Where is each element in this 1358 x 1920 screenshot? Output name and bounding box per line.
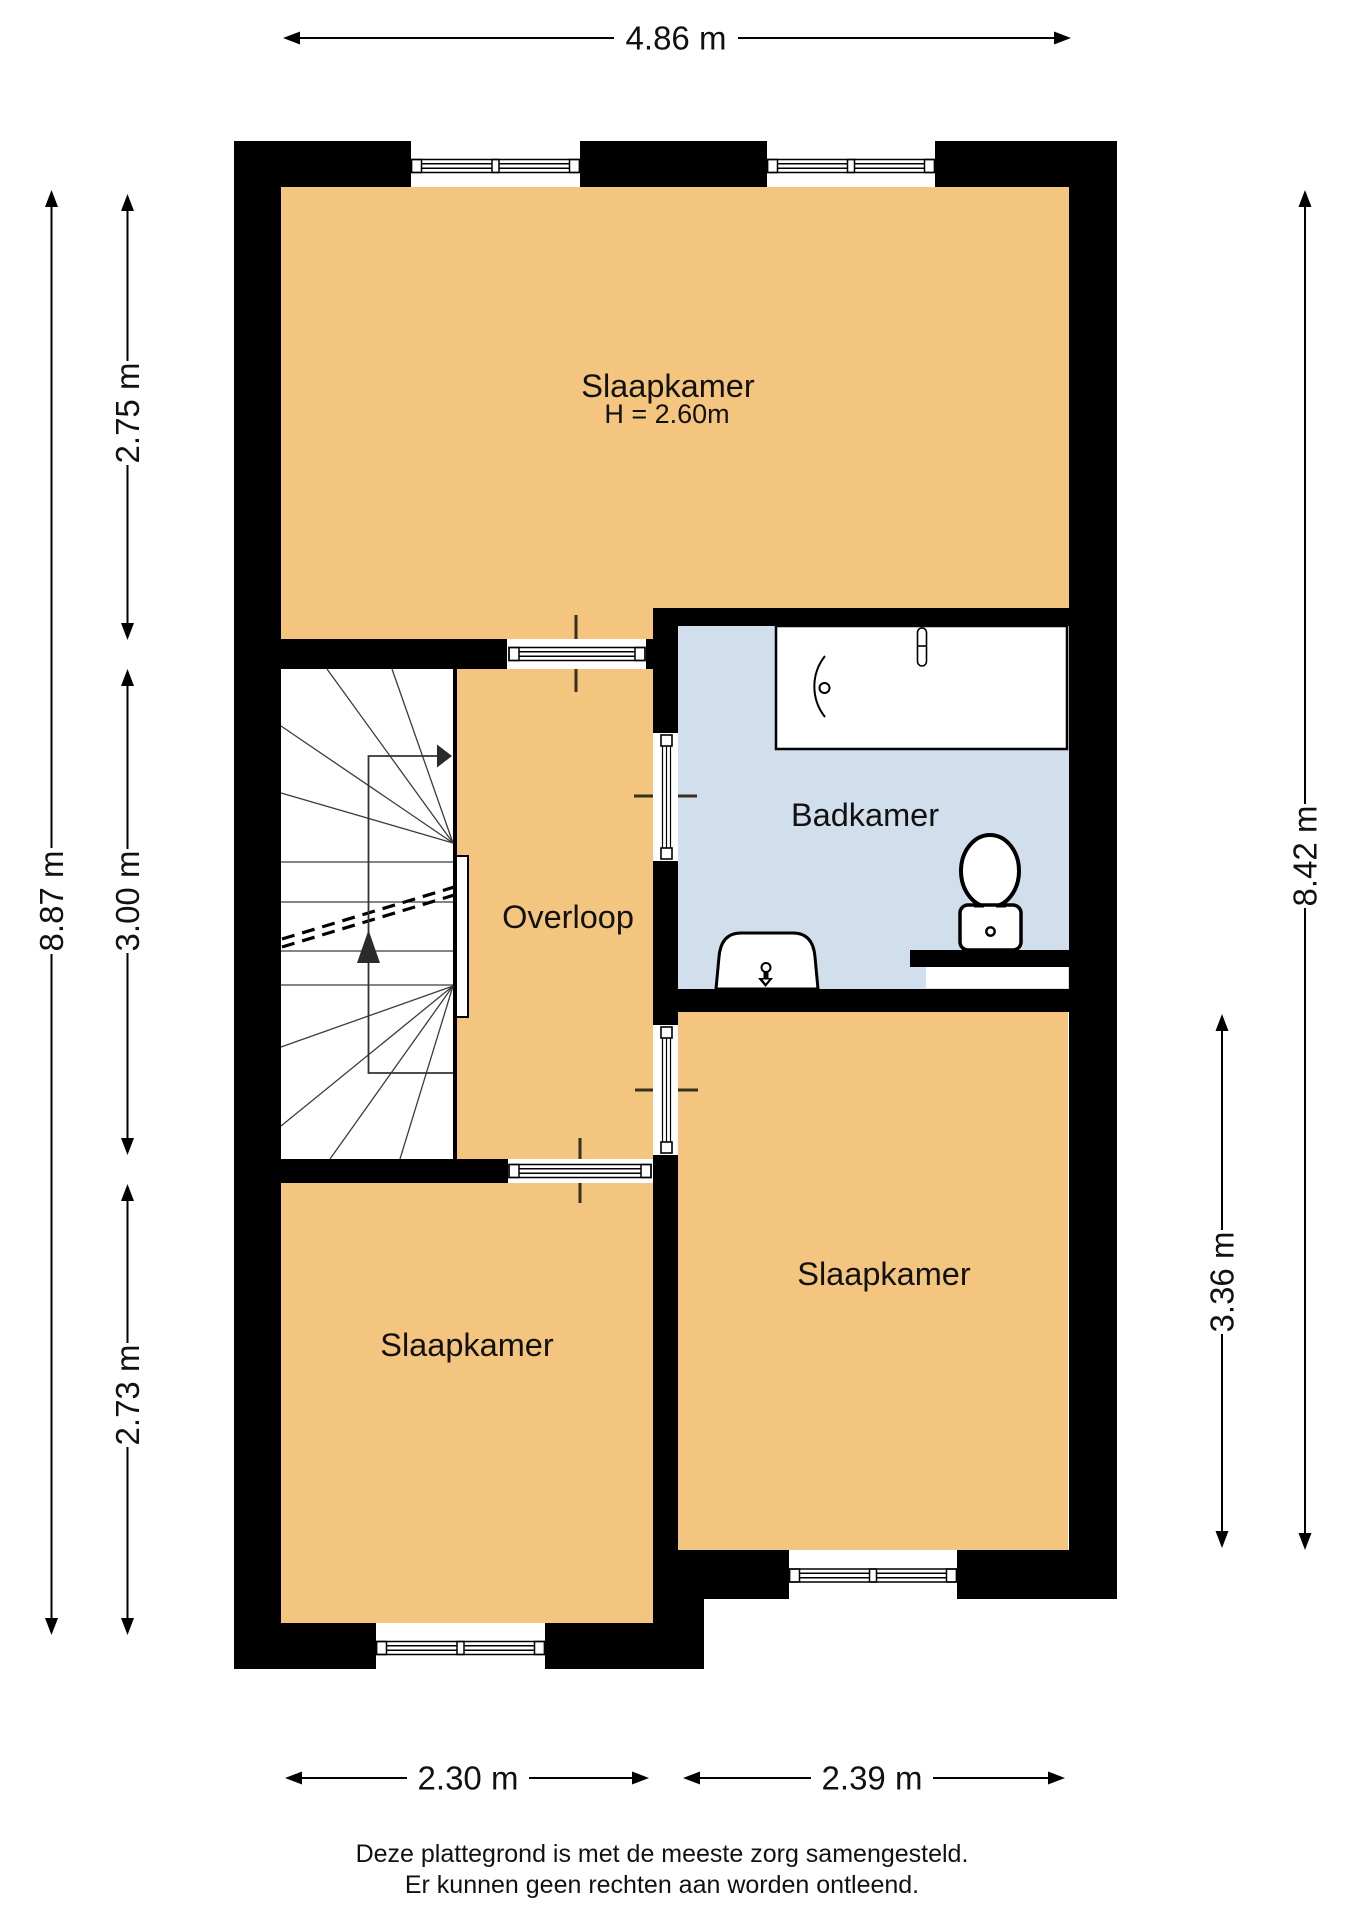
svg-text:2.39 m: 2.39 m xyxy=(822,1760,923,1797)
svg-text:8.87 m: 8.87 m xyxy=(33,851,70,952)
svg-text:Deze plattegrond is met de mee: Deze plattegrond is met de meeste zorg s… xyxy=(356,1840,969,1868)
svg-text:Er kunnen geen rechten aan wor: Er kunnen geen rechten aan worden ontlee… xyxy=(405,1871,919,1899)
svg-text:Overloop: Overloop xyxy=(502,899,634,935)
svg-text:4.86 m: 4.86 m xyxy=(626,20,727,57)
svg-text:Slaapkamer: Slaapkamer xyxy=(797,1256,971,1292)
svg-text:2.73 m: 2.73 m xyxy=(109,1345,146,1446)
svg-text:H = 2.60m: H = 2.60m xyxy=(604,399,729,429)
svg-text:2.75 m: 2.75 m xyxy=(109,363,146,464)
svg-text:Badkamer: Badkamer xyxy=(791,797,939,833)
svg-text:Slaapkamer: Slaapkamer xyxy=(380,1327,554,1363)
svg-text:3.00 m: 3.00 m xyxy=(109,851,146,952)
svg-text:8.42 m: 8.42 m xyxy=(1287,806,1324,907)
svg-text:3.36 m: 3.36 m xyxy=(1204,1232,1241,1333)
svg-text:2.30 m: 2.30 m xyxy=(418,1760,519,1797)
